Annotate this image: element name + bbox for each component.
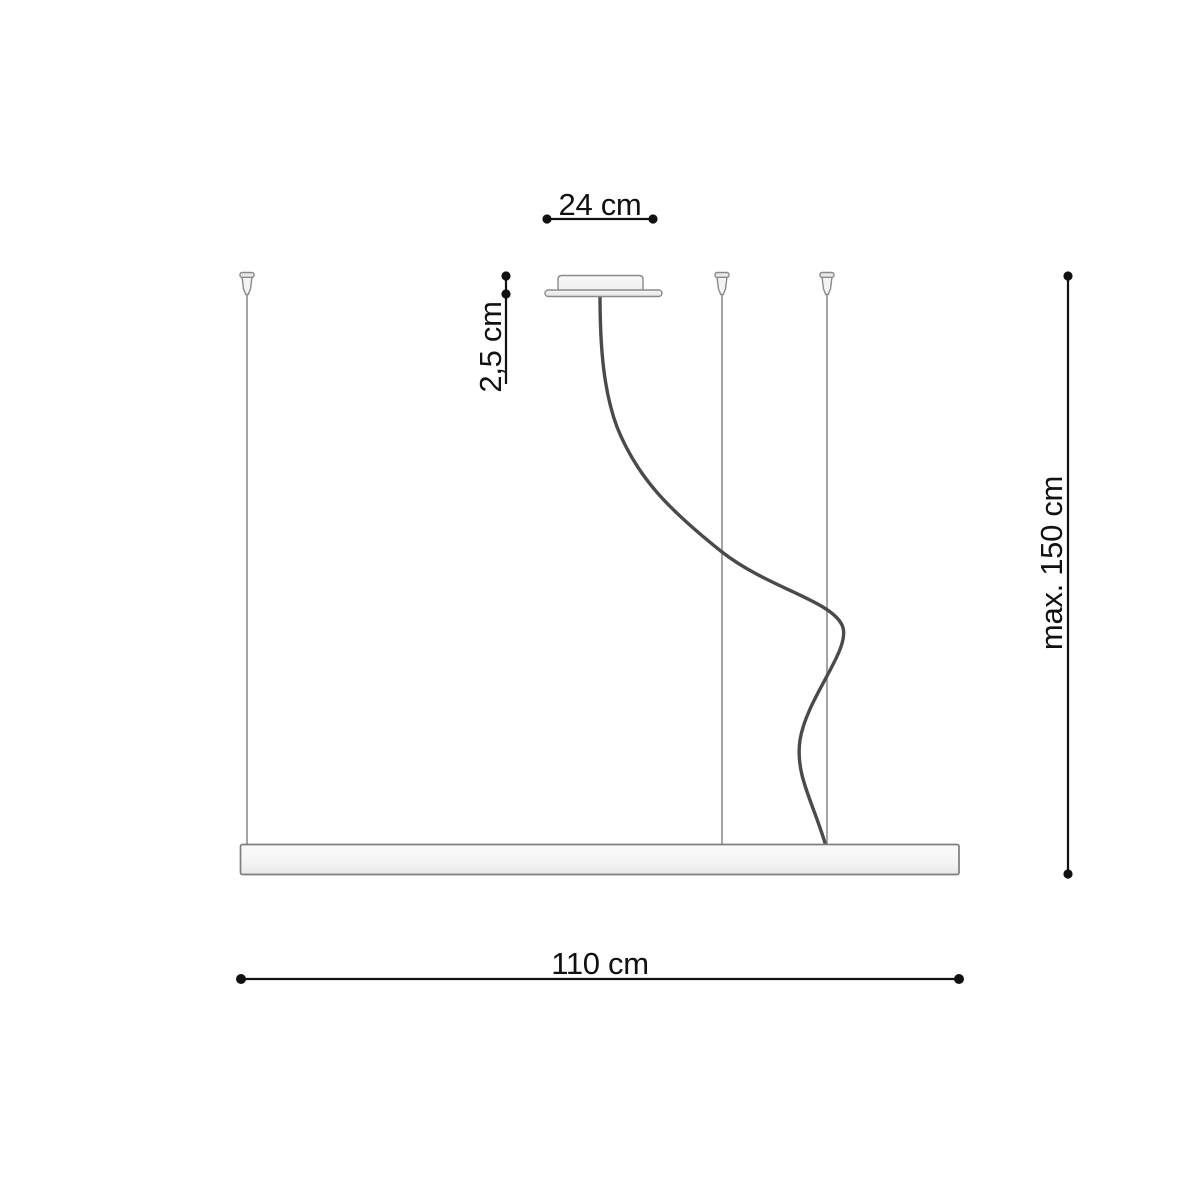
- wire-connectors: [240, 273, 834, 295]
- suspension-wires: [247, 294, 827, 845]
- connector-rim: [715, 273, 729, 278]
- dimension-fixture-length: 110 cm: [236, 946, 964, 984]
- dimension-endpoint-dot: [1063, 271, 1072, 280]
- ceiling-canopy: [545, 276, 662, 297]
- dimension-max-suspension: max. 150 cm: [1034, 271, 1073, 878]
- dimension-endpoint-dot: [1063, 869, 1072, 878]
- wire-connector-middle: [715, 273, 729, 295]
- dimension-canopy-height: 2,5 cm: [473, 271, 511, 392]
- wire-connector-left: [240, 273, 254, 295]
- connector-rim: [240, 273, 254, 278]
- dimension-endpoint-dot: [648, 214, 657, 223]
- canopy-flange: [545, 290, 662, 297]
- diagram-canvas: 24 cm 2,5 cm max. 150 cm 110 cm: [0, 0, 1200, 1200]
- connector-body: [822, 277, 832, 295]
- dimension-label: max. 150 cm: [1034, 476, 1069, 650]
- dimension-label: 2,5 cm: [473, 301, 508, 392]
- dimension-label: 110 cm: [551, 946, 649, 981]
- dimension-endpoint-dot: [501, 271, 510, 280]
- dimension-endpoint-dot: [542, 214, 551, 223]
- dimension-label: 24 cm: [559, 187, 642, 222]
- lamp-bar: [241, 845, 960, 875]
- connector-rim: [820, 273, 834, 278]
- connector-body: [717, 277, 727, 295]
- canopy-body: [558, 276, 643, 292]
- dimension-endpoint-dot: [954, 974, 964, 984]
- pendant-lamp-dimension-diagram: 24 cm 2,5 cm max. 150 cm 110 cm: [0, 0, 1200, 1200]
- dimension-endpoint-dot: [501, 289, 510, 298]
- wire-connector-right: [820, 273, 834, 295]
- dimension-canopy-width: 24 cm: [542, 187, 657, 224]
- dimension-endpoint-dot: [236, 974, 246, 984]
- connector-body: [242, 277, 252, 295]
